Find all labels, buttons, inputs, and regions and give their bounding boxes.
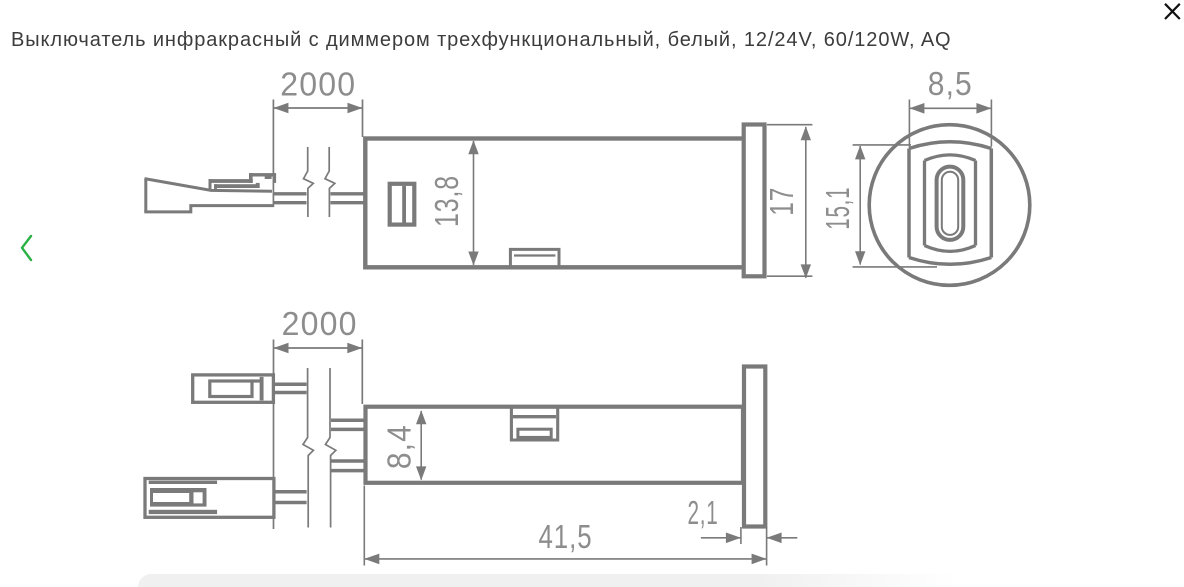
svg-text:8,5: 8,5 xyxy=(928,65,973,102)
svg-text:15,1: 15,1 xyxy=(819,187,856,230)
svg-text:13,8: 13,8 xyxy=(428,175,465,227)
svg-text:8,4: 8,4 xyxy=(381,424,418,469)
svg-text:41,5: 41,5 xyxy=(539,518,593,555)
svg-text:2000: 2000 xyxy=(280,65,356,102)
svg-text:2,1: 2,1 xyxy=(688,494,719,531)
svg-text:2000: 2000 xyxy=(282,305,358,342)
svg-text:17: 17 xyxy=(763,187,800,216)
